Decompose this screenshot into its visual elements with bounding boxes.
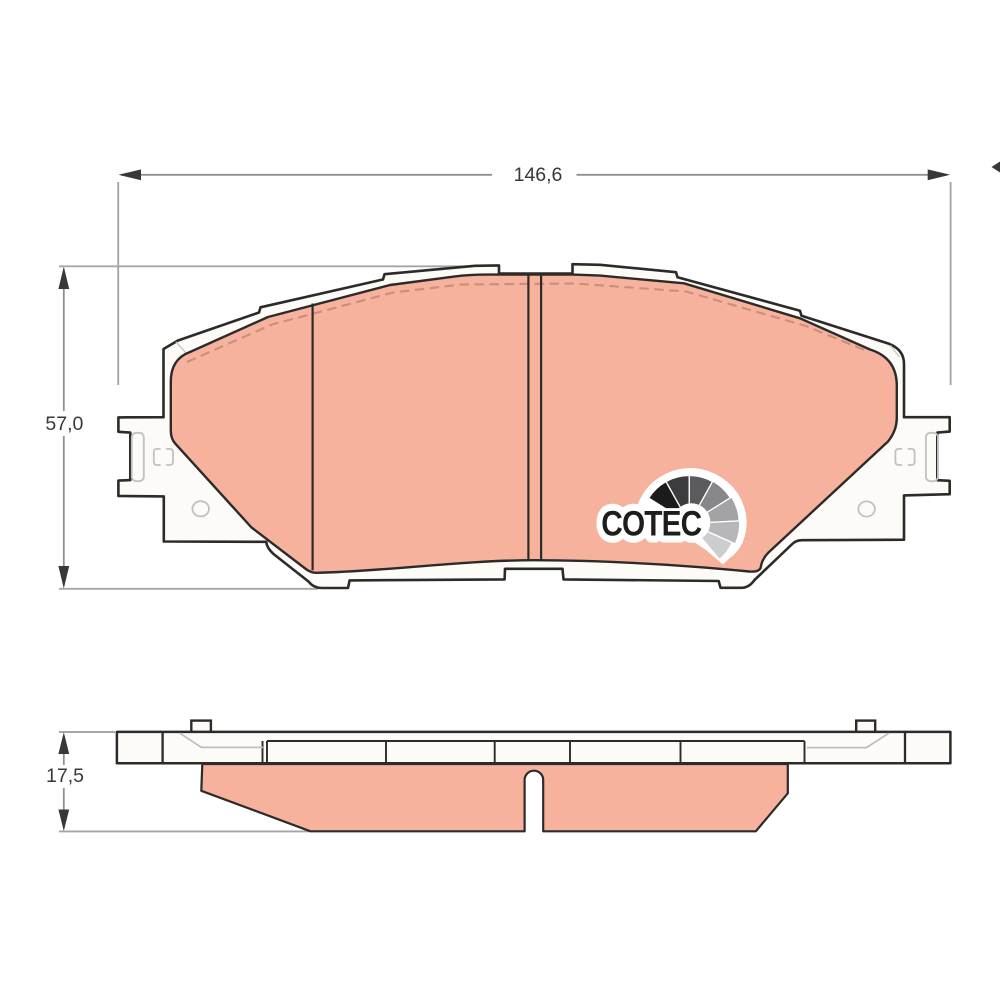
svg-text:57,0: 57,0 xyxy=(45,413,83,435)
svg-text:COTEC: COTEC xyxy=(601,504,702,543)
svg-text:17,5: 17,5 xyxy=(46,765,84,787)
svg-text:146,6: 146,6 xyxy=(514,164,563,186)
